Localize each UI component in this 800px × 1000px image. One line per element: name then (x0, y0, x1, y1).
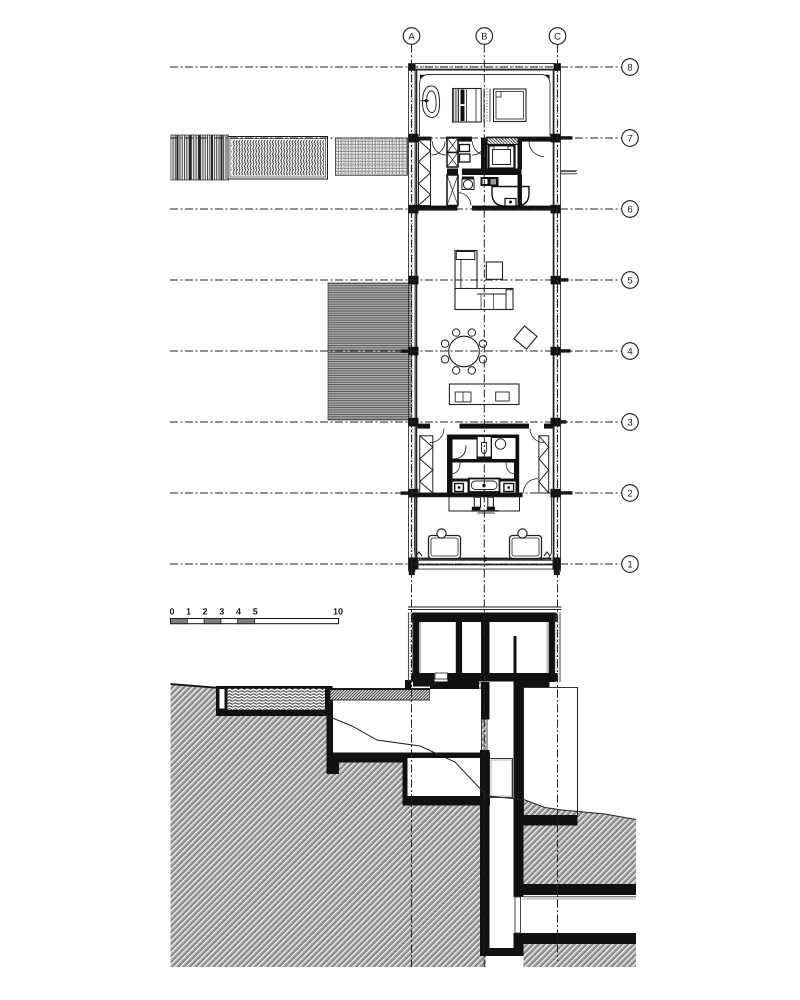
svg-text:6: 6 (627, 205, 632, 216)
svg-text:5: 5 (627, 276, 632, 287)
svg-text:4: 4 (236, 607, 241, 617)
svg-text:8: 8 (627, 63, 632, 74)
svg-text:4: 4 (627, 347, 632, 358)
svg-text:3: 3 (219, 607, 224, 617)
svg-text:7: 7 (627, 134, 632, 145)
svg-text:2: 2 (202, 607, 207, 617)
svg-text:1: 1 (627, 560, 632, 571)
svg-text:10: 10 (333, 607, 343, 617)
svg-text:5: 5 (253, 607, 258, 617)
svg-text:B: B (481, 32, 487, 43)
svg-text:2: 2 (627, 489, 632, 500)
svg-text:1: 1 (186, 607, 191, 617)
svg-text:A: A (408, 32, 415, 43)
svg-text:3: 3 (627, 418, 632, 429)
svg-text:C: C (554, 32, 561, 43)
svg-text:0: 0 (169, 607, 174, 617)
